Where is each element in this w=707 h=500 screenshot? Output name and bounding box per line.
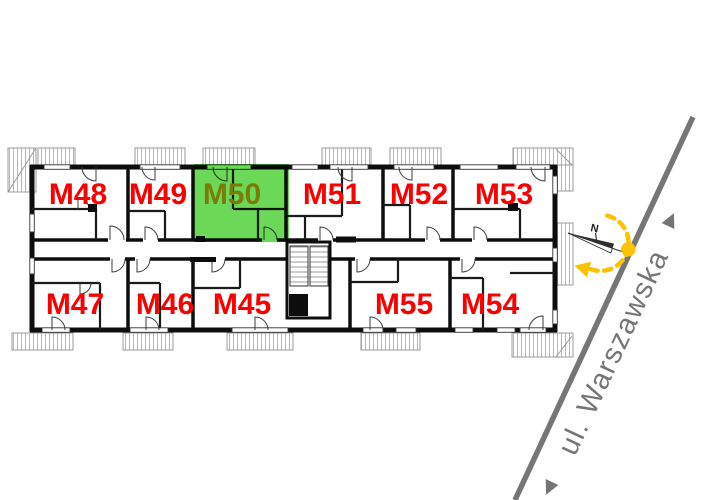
- street-direction-arrow-down-icon: [540, 479, 559, 498]
- unit-label-m51[interactable]: M51: [303, 178, 361, 211]
- unit-label-m48[interactable]: M48: [49, 178, 107, 211]
- unit-label-m45[interactable]: M45: [213, 288, 271, 321]
- street-warszawska: ul. Warszawska: [515, 117, 693, 500]
- street-direction-arrow-up-icon: [662, 210, 681, 229]
- sun-dot-icon: [621, 242, 635, 256]
- unit-label-m55[interactable]: M55: [375, 288, 433, 321]
- north-arrow-icon: N: [566, 222, 625, 256]
- unit-label-m49[interactable]: M49: [129, 178, 187, 211]
- unit-label-m47[interactable]: M47: [46, 288, 104, 321]
- staircase-core: [287, 242, 330, 318]
- floor-plan-page: M48 M49 M50 M51 M52 M53 M47 M46 M45 M55 …: [0, 0, 707, 500]
- unit-label-m54[interactable]: M54: [461, 288, 520, 321]
- unit-label-m50[interactable]: M50: [203, 178, 261, 211]
- unit-label-m52[interactable]: M52: [390, 178, 448, 211]
- unit-label-m46[interactable]: M46: [136, 288, 194, 321]
- floor-plan-svg: M48 M49 M50 M51 M52 M53 M47 M46 M45 M55 …: [0, 0, 707, 500]
- north-label: N: [589, 222, 599, 235]
- unit-label-m53[interactable]: M53: [475, 178, 533, 211]
- sun-path-arrow-icon: [572, 258, 591, 277]
